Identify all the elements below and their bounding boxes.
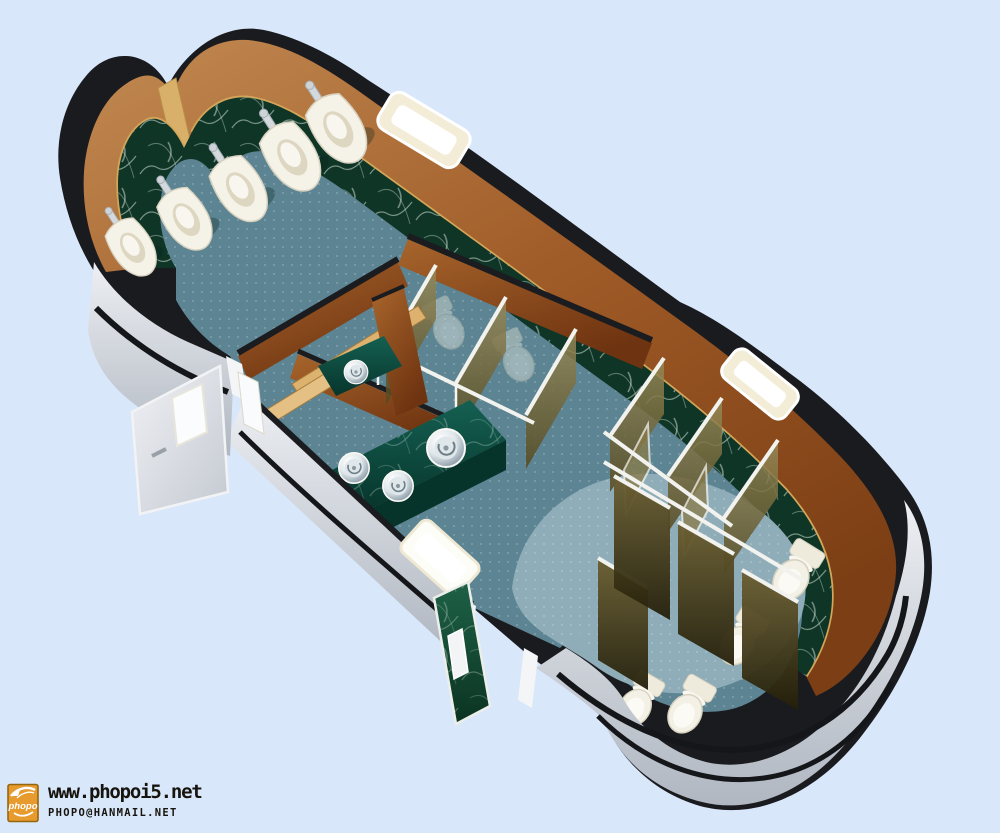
sink (339, 453, 369, 483)
rendered-scene: phopo www.phopoi5.net phopo@hanmail.net (0, 0, 1000, 833)
restroom-3d-render (0, 0, 1000, 833)
watermark-text: www.phopoi5.net phopo@hanmail.net (48, 783, 202, 819)
watermark: phopo www.phopoi5.net phopo@hanmail.net (7, 783, 202, 823)
sink (344, 360, 368, 384)
phopo-logo: phopo (7, 783, 39, 823)
email-address: phopo@hanmail.net (48, 808, 202, 819)
sink (427, 429, 465, 467)
sink (383, 471, 413, 501)
site-url: www.phopoi5.net (48, 783, 202, 802)
logo-text: phopo (7, 801, 37, 812)
